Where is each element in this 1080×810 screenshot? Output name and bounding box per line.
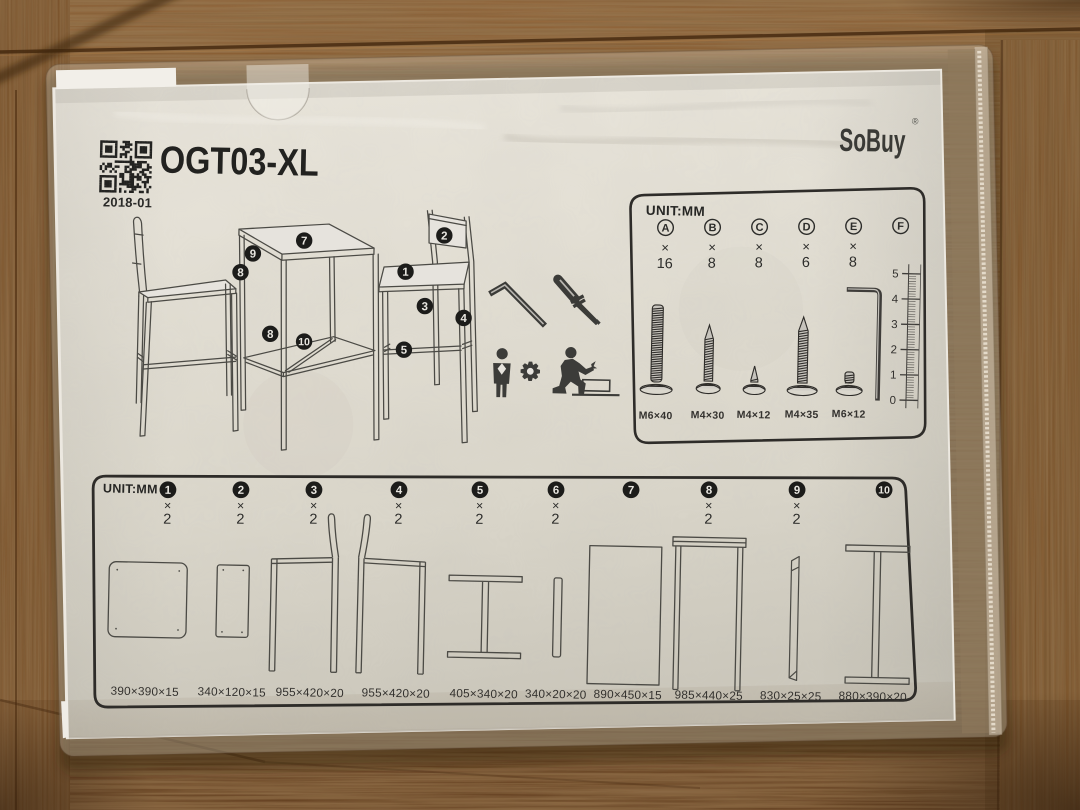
- svg-text:2: 2: [236, 512, 244, 528]
- svg-text:4: 4: [396, 485, 403, 497]
- svg-text:D: D: [802, 221, 810, 233]
- svg-text:2: 2: [309, 512, 317, 528]
- svg-text:2: 2: [163, 512, 171, 528]
- svg-text:2: 2: [890, 344, 897, 356]
- svg-text:340×120×15: 340×120×15: [197, 684, 266, 699]
- svg-text:2018-01: 2018-01: [103, 194, 152, 210]
- svg-text:8: 8: [706, 485, 713, 497]
- svg-text:880×390×20: 880×390×20: [838, 689, 907, 704]
- svg-text:390×390×15: 390×390×15: [110, 684, 179, 699]
- svg-text:×: ×: [849, 238, 857, 253]
- svg-text:×: ×: [708, 240, 716, 255]
- svg-text:1: 1: [402, 267, 409, 279]
- svg-text:1: 1: [165, 485, 172, 497]
- svg-text:9: 9: [250, 248, 257, 260]
- svg-text:16: 16: [657, 256, 673, 272]
- svg-text:5: 5: [477, 485, 484, 497]
- svg-text:A: A: [661, 223, 669, 235]
- svg-text:3: 3: [311, 485, 318, 497]
- svg-text:7: 7: [301, 236, 308, 248]
- svg-text:890×450×15: 890×450×15: [593, 687, 662, 702]
- svg-text:2: 2: [551, 512, 559, 528]
- svg-text:×: ×: [661, 240, 669, 255]
- svg-text:830×25×25: 830×25×25: [760, 688, 822, 703]
- svg-text:6: 6: [553, 485, 560, 497]
- svg-text:M4×30: M4×30: [691, 409, 725, 422]
- svg-text:4: 4: [892, 294, 899, 306]
- svg-text:2: 2: [792, 512, 800, 528]
- svg-text:M6×12: M6×12: [832, 408, 866, 421]
- svg-text:2: 2: [238, 485, 245, 497]
- svg-text:E: E: [850, 221, 858, 233]
- svg-text:®: ®: [912, 116, 919, 126]
- svg-text:×: ×: [164, 499, 172, 513]
- svg-text:2: 2: [475, 512, 483, 528]
- svg-text:SoBuy: SoBuy: [839, 122, 906, 159]
- svg-text:M4×35: M4×35: [785, 408, 819, 421]
- svg-text:955×420×20: 955×420×20: [275, 685, 344, 700]
- svg-text:3: 3: [891, 319, 898, 331]
- svg-text:2: 2: [441, 230, 448, 242]
- svg-text:8: 8: [237, 267, 244, 279]
- svg-text:×: ×: [755, 239, 763, 254]
- svg-text:B: B: [708, 222, 716, 234]
- svg-text:M6×40: M6×40: [639, 410, 673, 423]
- svg-text:10: 10: [298, 336, 310, 348]
- svg-text:985×440×25: 985×440×25: [674, 688, 743, 703]
- svg-text:2: 2: [704, 512, 712, 528]
- svg-text:×: ×: [237, 499, 245, 513]
- svg-text:UNIT:MM: UNIT:MM: [646, 203, 705, 219]
- svg-text:8: 8: [267, 329, 274, 341]
- svg-text:×: ×: [802, 239, 810, 254]
- svg-text:5: 5: [892, 268, 899, 280]
- svg-text:2: 2: [394, 512, 402, 528]
- svg-text:M4×12: M4×12: [737, 409, 771, 422]
- svg-text:8: 8: [708, 256, 716, 272]
- svg-text:6: 6: [802, 255, 810, 271]
- svg-text:OGT03-XL: OGT03-XL: [159, 140, 319, 185]
- svg-text:8: 8: [755, 255, 763, 271]
- svg-text:7: 7: [628, 485, 635, 497]
- svg-text:1: 1: [890, 370, 897, 382]
- svg-text:0: 0: [889, 395, 896, 407]
- svg-text:405×340×20: 405×340×20: [449, 686, 518, 701]
- svg-text:340×20×20: 340×20×20: [525, 686, 587, 701]
- svg-text:UNIT:MM: UNIT:MM: [103, 481, 158, 496]
- svg-text:F: F: [897, 221, 904, 233]
- svg-text:10: 10: [878, 484, 890, 496]
- svg-text:8: 8: [849, 254, 857, 270]
- svg-text:3: 3: [421, 301, 428, 313]
- svg-text:955×420×20: 955×420×20: [361, 685, 430, 700]
- svg-text:4: 4: [460, 313, 467, 325]
- svg-text:×: ×: [476, 499, 484, 513]
- svg-text:C: C: [755, 222, 763, 234]
- svg-text:9: 9: [794, 485, 801, 497]
- svg-text:5: 5: [401, 345, 408, 357]
